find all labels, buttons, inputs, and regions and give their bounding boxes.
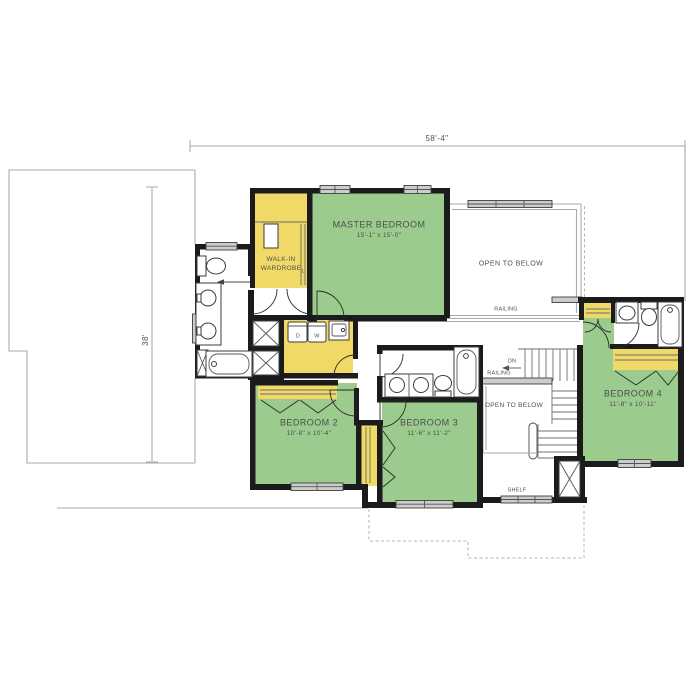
bath-window	[206, 243, 237, 251]
height-dimension-label: 38'	[142, 334, 150, 346]
shelf-unit	[501, 496, 552, 503]
floor-plan: 58'-4" 38' MASTER BEDROOM 15'-1" x 15'-0…	[0, 0, 700, 700]
bed4-sink-icon	[616, 302, 638, 323]
dn-label: DN	[508, 359, 516, 365]
open-below-window	[468, 201, 552, 208]
bedroom-3-label: BEDROOM 3	[400, 419, 458, 428]
master-window-1	[320, 186, 350, 194]
stair-railing-bar	[481, 378, 552, 384]
open-to-below-stairs-label: OPEN TO BELOW	[485, 403, 543, 410]
bed4-toilet-icon	[641, 302, 657, 326]
stair-landing-rail	[552, 297, 582, 303]
hall-bathtub-icon	[454, 347, 479, 397]
bed4-bathtub-icon	[658, 302, 682, 347]
master-bedroom-floor	[312, 193, 445, 316]
railing-upper-label: RAILING	[494, 307, 517, 313]
washer-label: W	[314, 334, 319, 340]
bedroom-4-closet	[613, 348, 678, 370]
bath-pocket-door	[217, 279, 250, 284]
bedroom-3-closet	[361, 425, 377, 486]
laundry-sink-icon	[329, 321, 349, 340]
wardrobe-label-line2: WARDROBE	[261, 266, 301, 273]
bedroom-4-window	[618, 460, 651, 468]
hall-toilet-icon	[435, 376, 452, 398]
linen-label: L	[302, 270, 305, 275]
shelf-label: SHELF	[508, 488, 527, 494]
master-vanity	[196, 283, 221, 345]
bedroom-4-size: 11'-8" x 10'-11"	[609, 402, 656, 409]
bedroom-2-window	[291, 483, 343, 491]
width-dimension-label: 58'-4"	[425, 135, 448, 143]
bedroom-2-closet	[258, 385, 337, 399]
master-toilet-icon	[197, 256, 226, 276]
bedroom-4-label: BEDROOM 4	[604, 390, 662, 399]
wardrobe-label-line1: WALK-IN	[267, 257, 296, 264]
bedroom-4-corner-closet	[584, 302, 611, 318]
stair-railing-post	[529, 423, 537, 459]
bedroom-3-window	[396, 501, 453, 509]
hall-bath-vanity	[385, 374, 433, 397]
master-window-2	[404, 186, 431, 194]
dryer-label: D	[296, 334, 300, 340]
bedroom-2-label: BEDROOM 2	[280, 419, 338, 428]
bedroom-3-size: 11'-6" x 11'-2"	[407, 431, 451, 438]
master-bathtub-icon	[206, 351, 252, 377]
floor-plan-drawing	[0, 0, 700, 700]
master-bedroom-size: 15'-1" x 15'-0"	[357, 233, 401, 240]
wardrobe-door-left	[252, 289, 277, 314]
open-to-below-upper-label: OPEN TO BELOW	[479, 261, 543, 268]
walk-in-wardrobe-floor	[255, 193, 307, 288]
master-bedroom-label: MASTER BEDROOM	[333, 221, 426, 230]
bedroom-2-size: 10'-8" x 10'-4"	[287, 431, 331, 438]
railing-stairs-label: RAILING	[487, 371, 510, 377]
bedroom-3-floor	[382, 400, 478, 504]
